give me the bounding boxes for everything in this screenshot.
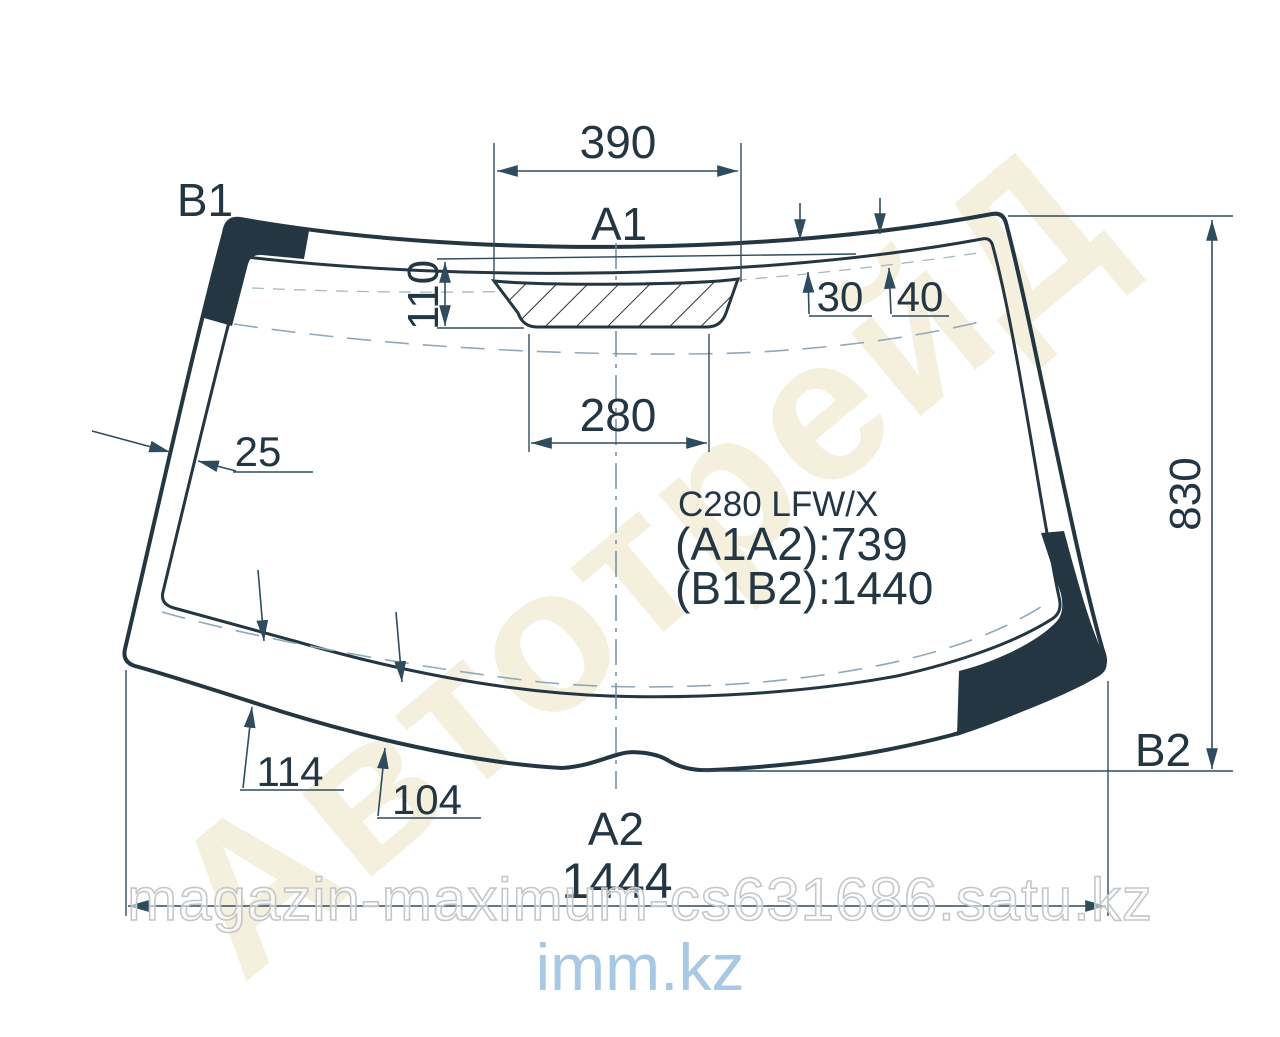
label-b1: B1	[177, 174, 233, 226]
dim-110-text: 110	[399, 260, 448, 330]
corner-tint-bottom-right	[957, 531, 1107, 736]
sensor-patch-hatch-fill	[494, 279, 738, 327]
dim-104-text: 104	[392, 776, 462, 823]
corner-tint-top-left	[204, 219, 309, 326]
dim-25-text: 25	[235, 428, 282, 475]
dim-830-text: 830	[1161, 457, 1210, 530]
part-info: C280 LFW/X (A1A2):739 (B1B2):1440	[675, 485, 933, 614]
windshield-diagram-page: АвтотрейД	[0, 0, 1280, 1037]
leader-25-outer	[92, 431, 170, 452]
dim-114-text: 114	[257, 748, 324, 795]
leader-25-inner	[198, 461, 236, 471]
store-url-watermark: magazin-maximum-cs631686.satu.kz	[127, 866, 1153, 933]
dim-280-text: 280	[580, 389, 657, 441]
dim-30-text: 30	[817, 273, 864, 320]
ext-110-top	[437, 254, 856, 259]
dim-40-text: 40	[897, 273, 944, 320]
dim-390-text: 390	[580, 116, 657, 168]
label-b2: B2	[1135, 724, 1191, 776]
label-a2: A2	[588, 803, 644, 855]
label-a1: A1	[591, 198, 647, 250]
windshield-diagram: АвтотрейД	[0, 0, 1280, 1037]
site-watermark: imm.kz	[536, 930, 745, 1004]
part-b1b2-text: (B1B2):1440	[675, 562, 933, 614]
leader-30	[808, 272, 809, 314]
